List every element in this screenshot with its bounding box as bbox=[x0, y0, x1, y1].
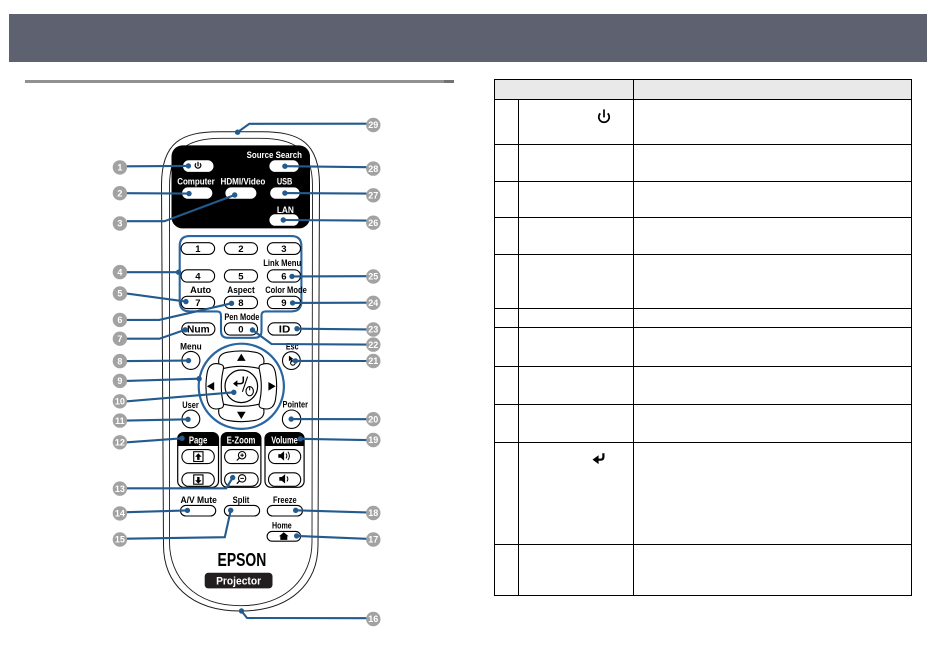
svg-text:Page: Page bbox=[189, 435, 208, 446]
svg-text:4: 4 bbox=[195, 271, 201, 282]
svg-text:5: 5 bbox=[117, 289, 122, 299]
svg-text:24: 24 bbox=[368, 298, 378, 308]
svg-text:6: 6 bbox=[117, 315, 122, 325]
svg-text:USB: USB bbox=[277, 177, 293, 187]
svg-text:20: 20 bbox=[368, 414, 378, 424]
svg-text:3: 3 bbox=[117, 219, 122, 229]
svg-text:User: User bbox=[182, 400, 199, 411]
svg-text:1: 1 bbox=[195, 244, 201, 255]
svg-text:5: 5 bbox=[238, 271, 244, 282]
svg-text:16: 16 bbox=[368, 614, 378, 624]
svg-text:18: 18 bbox=[368, 508, 378, 518]
svg-text:13: 13 bbox=[115, 484, 125, 494]
svg-text:1: 1 bbox=[117, 163, 122, 173]
svg-text:Volume: Volume bbox=[271, 435, 298, 446]
svg-text:29: 29 bbox=[368, 120, 378, 130]
svg-text:LAN: LAN bbox=[277, 205, 294, 215]
svg-text:Color Mode: Color Mode bbox=[265, 285, 307, 295]
svg-text:9: 9 bbox=[281, 298, 286, 309]
svg-text:10: 10 bbox=[115, 397, 125, 407]
svg-text:Source Search: Source Search bbox=[247, 150, 303, 160]
svg-text:HDMI/Video: HDMI/Video bbox=[221, 177, 266, 187]
svg-text:4: 4 bbox=[117, 267, 122, 277]
svg-text:7: 7 bbox=[195, 298, 200, 309]
svg-text:17: 17 bbox=[368, 535, 378, 545]
svg-text:28: 28 bbox=[368, 164, 378, 174]
svg-text:8: 8 bbox=[238, 298, 243, 309]
svg-text:2: 2 bbox=[117, 188, 122, 198]
svg-text:19: 19 bbox=[368, 435, 378, 445]
svg-text:Projector: Projector bbox=[216, 576, 262, 588]
svg-text:15: 15 bbox=[115, 535, 125, 545]
svg-text:25: 25 bbox=[368, 272, 378, 282]
svg-text:Computer: Computer bbox=[177, 177, 215, 187]
svg-text:A/V Mute: A/V Mute bbox=[181, 495, 217, 505]
svg-text:11: 11 bbox=[115, 416, 125, 426]
svg-text:0: 0 bbox=[238, 324, 243, 335]
svg-text:Pointer: Pointer bbox=[283, 399, 309, 410]
svg-text:Pen Mode: Pen Mode bbox=[224, 312, 259, 322]
svg-text:9: 9 bbox=[117, 376, 122, 386]
svg-text:Link Menu: Link Menu bbox=[263, 258, 301, 268]
svg-text:2: 2 bbox=[238, 244, 243, 255]
svg-text:23: 23 bbox=[368, 325, 378, 335]
svg-text:E-Zoom: E-Zoom bbox=[227, 435, 256, 446]
svg-text:21: 21 bbox=[368, 356, 378, 366]
svg-text:12: 12 bbox=[115, 438, 125, 448]
svg-text:Freeze: Freeze bbox=[273, 495, 297, 505]
svg-text:ID: ID bbox=[279, 324, 291, 335]
svg-text:3: 3 bbox=[281, 244, 286, 255]
svg-text:26: 26 bbox=[368, 218, 378, 228]
svg-text:Num: Num bbox=[187, 324, 210, 335]
svg-text:14: 14 bbox=[115, 509, 125, 519]
svg-text:6: 6 bbox=[281, 271, 286, 282]
svg-text:22: 22 bbox=[368, 340, 378, 350]
svg-text:Home: Home bbox=[272, 521, 292, 531]
svg-text:Split: Split bbox=[233, 495, 250, 505]
svg-text:EPSON: EPSON bbox=[218, 549, 267, 570]
svg-text:Aspect: Aspect bbox=[227, 285, 254, 295]
svg-text:27: 27 bbox=[368, 191, 378, 201]
svg-text:8: 8 bbox=[117, 356, 122, 366]
svg-text:Auto: Auto bbox=[190, 285, 211, 295]
svg-text:7: 7 bbox=[117, 334, 122, 344]
